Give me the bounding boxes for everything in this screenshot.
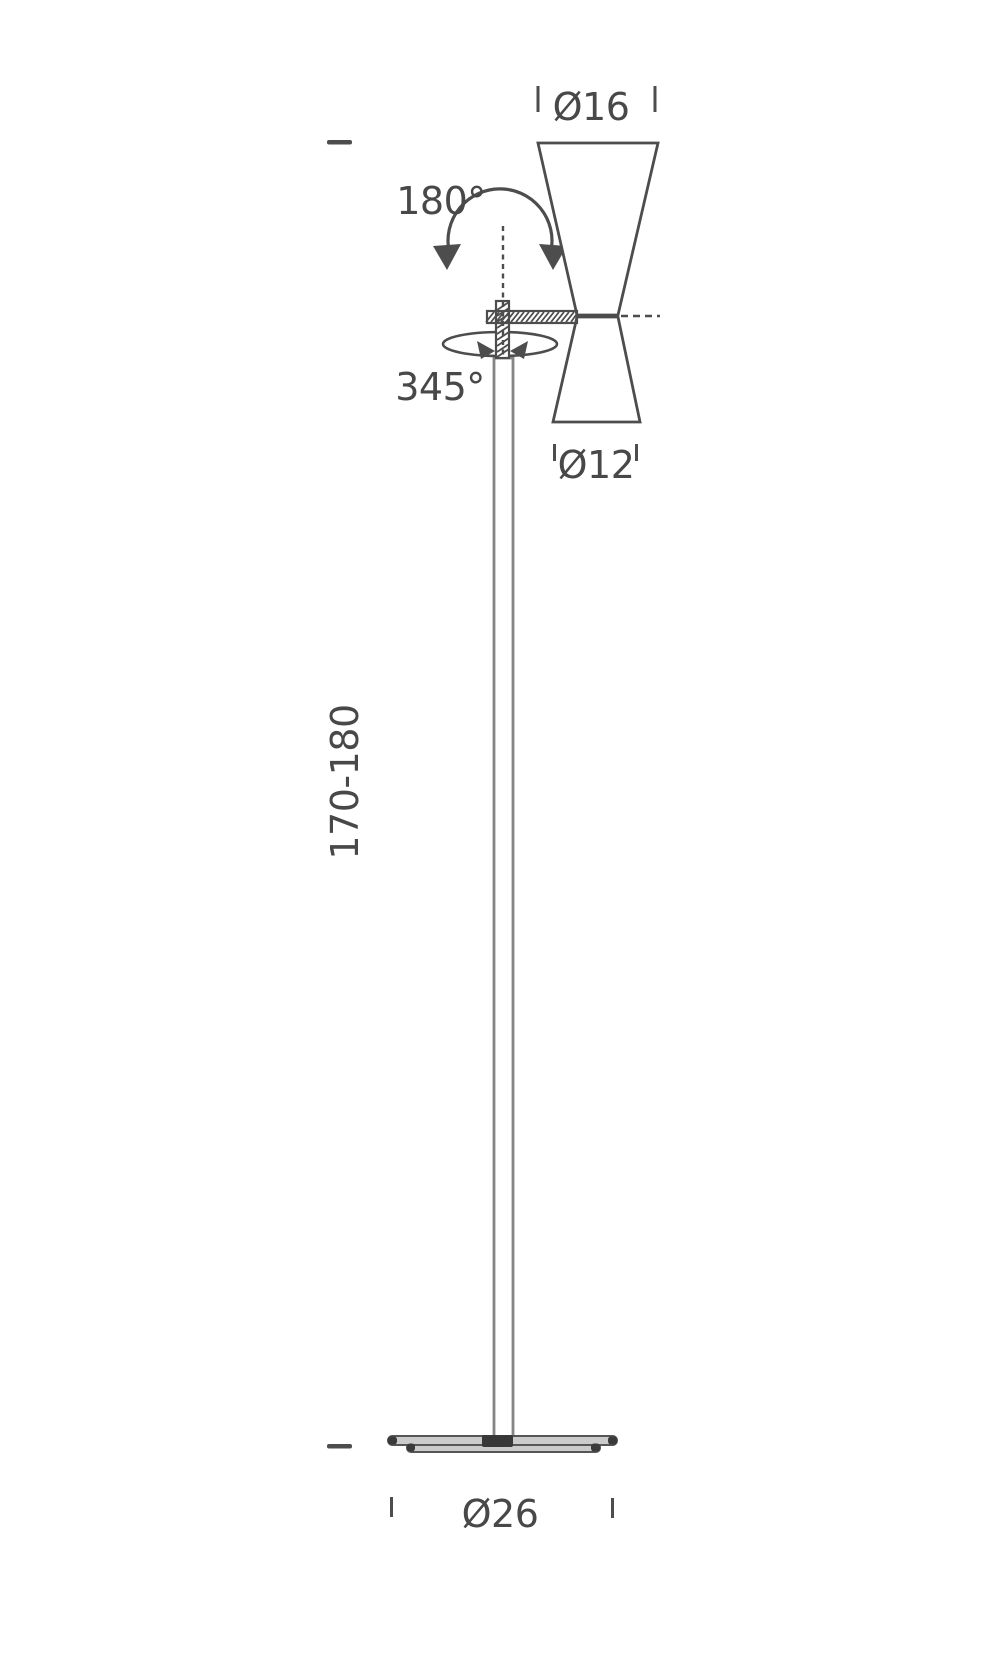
base-cap-bottom-left (407, 1444, 415, 1452)
shade-lower-cone (553, 317, 640, 422)
tick-shade-top-right (654, 86, 657, 112)
tick-shade-bottom-left (553, 444, 556, 461)
label-shade-bottom-diameter: Ø12 (558, 443, 635, 487)
height-ref-bottom-dash (327, 1444, 352, 1449)
tick-base-left (390, 1497, 393, 1517)
tick-base-right (611, 1498, 614, 1518)
label-tilt-angle: 180° (396, 179, 486, 223)
tick-shade-top-left (537, 86, 540, 112)
base-hub (482, 1435, 513, 1447)
tick-shade-bottom-right (635, 444, 638, 461)
pole (494, 358, 513, 1438)
label-height-range: 170-180 (323, 704, 367, 859)
label-shade-top-diameter: Ø16 (553, 85, 630, 129)
diagram-svg: Ø16 180° 345° Ø12 170-180 Ø26 (0, 0, 1000, 1671)
label-base-diameter: Ø26 (462, 1492, 539, 1536)
height-ref-top-dash (327, 140, 352, 145)
base-cap-top-right (608, 1437, 617, 1445)
base-cap-bottom-right (591, 1444, 600, 1452)
shade-upper-cone (538, 143, 658, 315)
tilt-arrow-left-icon (433, 244, 461, 270)
lamp-shade (538, 143, 658, 422)
base-cap-top-left (388, 1437, 397, 1445)
label-rotation-angle: 345° (395, 365, 485, 409)
base (388, 1435, 617, 1452)
floor-lamp-dimension-diagram: Ø16 180° 345° Ø12 170-180 Ø26 (0, 0, 1000, 1671)
